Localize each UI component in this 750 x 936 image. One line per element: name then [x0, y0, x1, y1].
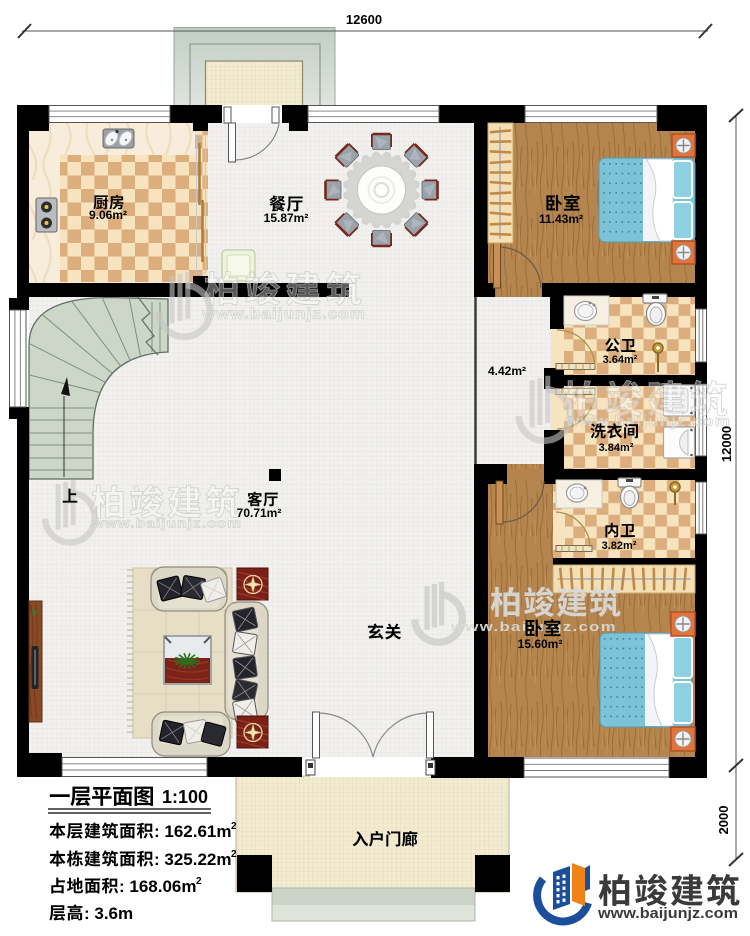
svg-text:3.84m²: 3.84m² [599, 442, 634, 454]
svg-text:1:100: 1:100 [162, 787, 208, 807]
svg-text:: 325.22m: : 325.22m [154, 850, 232, 869]
svg-text:: 3.6m: : 3.6m [84, 904, 133, 923]
svg-text:2: 2 [231, 849, 237, 860]
svg-text:3.64m²: 3.64m² [603, 354, 638, 366]
svg-text:3.82m²: 3.82m² [602, 540, 637, 552]
svg-text:12000: 12000 [719, 426, 734, 462]
svg-text:2: 2 [196, 876, 202, 887]
svg-text:15.60m²: 15.60m² [518, 637, 563, 651]
svg-text:www.baijunjz.com: www.baijunjz.com [91, 517, 242, 531]
svg-text:www.baijunjz.com: www.baijunjz.com [565, 414, 731, 430]
svg-text:2: 2 [231, 821, 237, 832]
svg-text:12600: 12600 [346, 12, 382, 27]
svg-text:: 168.06m: : 168.06m [119, 877, 197, 896]
svg-text:9.06m²: 9.06m² [89, 208, 127, 222]
svg-text:11.43m²: 11.43m² [539, 212, 583, 226]
svg-text:www.baijunjz.com: www.baijunjz.com [201, 307, 366, 323]
svg-text:: 162.61m: : 162.61m [154, 822, 232, 841]
svg-text:www.baijunjz.com: www.baijunjz.com [597, 906, 738, 922]
svg-text:15.87m²: 15.87m² [264, 211, 309, 225]
svg-text:2000: 2000 [716, 806, 731, 835]
svg-text:4.42m²: 4.42m² [488, 364, 526, 378]
svg-text:70.71m²: 70.71m² [237, 506, 282, 520]
